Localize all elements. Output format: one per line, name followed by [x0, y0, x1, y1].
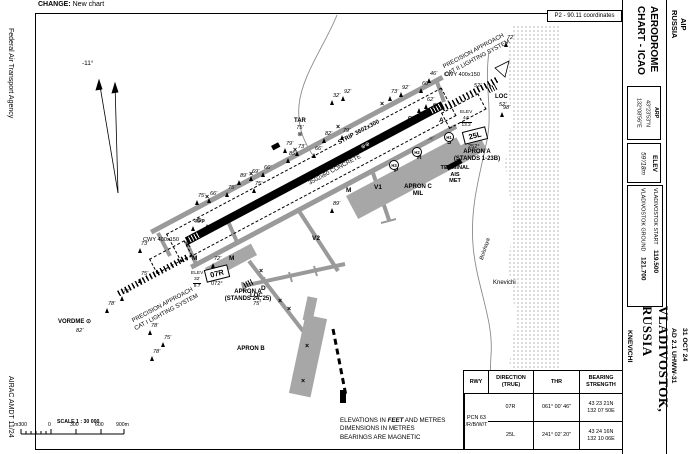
obstacle-icon: 92' — [341, 96, 345, 101]
obstacle-icon: 62' — [424, 104, 428, 109]
elev-box: ELEV 59'/18m — [627, 143, 661, 183]
obstacle-elevation: 75' — [123, 289, 130, 295]
closed-cross-icon: × — [305, 343, 309, 350]
tar-elev: 75' — [296, 125, 303, 131]
obstacle-icon: 89' — [330, 208, 334, 213]
col-header-direction: DIRECTION (TRUE) — [488, 371, 533, 393]
chart-title: AERODROME CHART - ICAO — [634, 6, 660, 90]
closed-cross-icon: × — [380, 101, 384, 108]
obstacle-icon: 78' — [105, 308, 109, 313]
freq-name: VLADIVOSTOK START — [652, 188, 658, 245]
obstacle-icon: 92' — [399, 92, 403, 97]
obstacle-triangle — [388, 96, 392, 101]
cell-rwy-25l: 25L — [488, 421, 533, 449]
glidepath-icon-25l — [417, 108, 421, 113]
obstacle-triangle — [340, 135, 344, 140]
obstacle-triangle — [138, 278, 142, 283]
elev-feet: 32' — [194, 277, 200, 282]
obstacle-triangle — [195, 200, 199, 205]
obstacle-elevation: 46' — [430, 71, 437, 77]
apron-a-west-label: APRON A (STANDS 24, 25) — [213, 289, 283, 303]
taxiway-label: K — [186, 243, 191, 250]
freq-start: VLADIVOSTOK START 119.500 — [649, 188, 661, 304]
change-value: New chart — [73, 1, 105, 8]
obstacle-elevation: 72' — [214, 256, 221, 262]
ad-reference: 31 OCT 24 AD 2.1 UHWW-31 — [667, 328, 689, 450]
elev-label: ELEV — [648, 144, 660, 182]
col-header-rwy: RWY — [464, 371, 488, 393]
tar-site: TAR 75' ⊗ — [294, 118, 306, 139]
obstacle-triangle — [330, 208, 334, 213]
runway-data-table: RWY DIRECTION (TRUE) THR BEARING STRENGT… — [463, 370, 623, 450]
scale-tick-label: 300 — [70, 422, 79, 428]
clearway-elev-25l: 52' — [474, 83, 481, 89]
obstacle-elevation: 75' — [255, 181, 262, 187]
taxiway-label: V1 — [374, 185, 382, 192]
obstacle-elevation: 32' — [333, 93, 340, 99]
arp-lon: 132°08'56"E — [634, 87, 643, 139]
tar-radar-icon: ⊗ — [297, 131, 302, 138]
obstacle-triangle — [322, 138, 326, 143]
obstacle-triangle — [191, 226, 195, 231]
threshold-marks-07r — [188, 232, 200, 242]
obstacle-elevation: 78' — [108, 301, 115, 307]
obstacle-elevation: 66' — [210, 191, 217, 197]
obstacle-triangle — [424, 104, 428, 109]
glidepath-label-25l: GP — [408, 116, 416, 122]
obstacle-icon: 75' — [225, 192, 229, 197]
obstacle-triangle — [261, 172, 265, 177]
closed-cross-icon: × — [301, 378, 305, 385]
elev-value: 59'/18m — [637, 144, 649, 182]
freq-ground: VLADIVOSTOK GROUND 121.700 — [636, 188, 648, 304]
obstacle-elevation: 85' — [289, 151, 296, 157]
coords-note-box: P2 - 90.11 coordinates — [547, 10, 622, 22]
closed-cross-icon: × — [278, 298, 282, 305]
vordme-label: VORDME ⊙ — [58, 319, 91, 326]
taxiway-label: V2 — [312, 236, 320, 243]
ad-date: 31 OCT 24 — [678, 328, 689, 450]
obstacle-triangle — [419, 88, 423, 93]
obstacle-icon: 75' — [195, 200, 199, 205]
cell-thr-07r: 43 23 21N 132 07 50E — [579, 393, 622, 421]
taxiway-label: M — [229, 256, 234, 263]
scale-tick-label: 600 — [95, 422, 104, 428]
holding-point-circle: H1 — [444, 132, 454, 142]
vordme-elev: 82' — [76, 328, 83, 334]
obstacle-triangle — [207, 198, 211, 203]
chart-notes: ELEVATIONS IN FEET AND METRES DIMENSIONS… — [340, 417, 445, 442]
obstacle-elevation: 75' — [164, 335, 171, 341]
holding-point-circle: H2 — [412, 147, 422, 157]
freq-value: 121.700 — [640, 257, 647, 281]
airport-name-label: KNEVICHI — [626, 330, 633, 390]
town-label: Knevichi — [493, 280, 516, 287]
obstacle-elevation: 73' — [298, 144, 305, 150]
taxiway-label: A — [439, 118, 444, 125]
scale-tick-label: m300 — [14, 422, 27, 428]
obstacle-triangle — [148, 330, 152, 335]
obstacle-triangle — [286, 158, 290, 163]
note-part: AND METRES — [403, 417, 445, 424]
obstacle-icon: 75' — [161, 342, 165, 347]
obstacle-triangle — [161, 342, 165, 347]
obstacle-elevation: 46' — [194, 219, 201, 225]
airac-label: AIRAC AMDT 11/24 — [7, 376, 14, 452]
chart-title-line2: CHART - ICAO — [634, 6, 647, 90]
obstacle-icon: 72' — [504, 42, 508, 47]
com-box: VLADIVOSTOK START 119.500 VLADIVOSTOK GR… — [627, 185, 663, 307]
obstacle-elevation: 89' — [333, 201, 340, 207]
obstacle-elevation: 78' — [151, 323, 158, 329]
obstacle-triangle — [500, 112, 504, 117]
obstacle-icon: 46' — [191, 226, 195, 231]
closed-cross-icon: × — [259, 268, 263, 275]
clearway-label-07r: CWY 400x150 — [143, 237, 179, 243]
obstacle-elevation: 73' — [391, 89, 398, 95]
obstacle-icon: 46' — [427, 78, 431, 83]
obstacle-icon: 66' — [419, 88, 423, 93]
taxiway-label: M — [192, 256, 197, 263]
taxiway-label: M — [346, 188, 351, 195]
aerodrome-chart-page: CHANGE: New chart Federal Air Transport … — [0, 0, 690, 454]
obstacle-icon: 73' — [388, 96, 392, 101]
obstacle-triangle — [225, 192, 229, 197]
obstacle-triangle — [504, 42, 508, 47]
cell-direction-25l: 241° 02' 20" — [533, 421, 579, 449]
obstacle-icon: 85' — [286, 158, 290, 163]
obstacle-elevation: 79' — [343, 128, 350, 134]
taxiway-label: D — [261, 286, 266, 293]
obstacle-triangle — [399, 92, 403, 97]
col-header-bearing: BEARING STRENGTH — [579, 371, 622, 393]
obstacle-icon: 75' — [120, 296, 124, 301]
obstacle-triangle — [252, 188, 256, 193]
obstacle-triangle — [211, 263, 215, 268]
obstacle-elevation: 92' — [402, 85, 409, 91]
obstacle-icon: 66' — [207, 198, 211, 203]
obstacle-icon: 79' — [340, 135, 344, 140]
obstacle-triangle — [312, 153, 316, 158]
col-header-thr: THR — [533, 371, 579, 393]
obstacle-triangle — [283, 148, 287, 153]
obstacle-icon: 82' — [322, 138, 326, 143]
obstacle-elevation: 79' — [286, 141, 293, 147]
obstacle-icon: 73' — [138, 248, 142, 253]
chart-title-line1: AERODROME — [647, 6, 660, 90]
obstacle-elevation: 89' — [240, 173, 247, 179]
note-elevations: ELEVATIONS IN FEET AND METRES — [340, 417, 445, 425]
freq-value: 119.500 — [652, 250, 659, 273]
cell-thr-25l: 43 24 16N 132 10 06E — [579, 421, 622, 449]
obstacle-icon: 79' — [283, 148, 287, 153]
ad-ref-number: AD 2.1 UHWW-31 — [667, 328, 678, 450]
cell-direction-07r: 061° 00' 46" — [533, 393, 579, 421]
obstacle-elevation: 62' — [427, 97, 434, 103]
apron-c-label: APRON C MIL — [396, 184, 440, 198]
obstacle-elevation: 66' — [315, 146, 322, 152]
obstacle-triangle — [138, 248, 142, 253]
apron-a-east-label: APRON A (STANDS 1-23B) — [446, 149, 508, 163]
obstacle-icon: 69' — [249, 176, 253, 181]
arp-label: ARP — [651, 87, 660, 139]
obstacle-elevation: 98' — [503, 105, 510, 111]
agency-label: Federal Air Transport Agency — [7, 28, 14, 248]
obstacle-triangle — [330, 100, 334, 105]
obstacle-icon: 72' — [211, 263, 215, 268]
obstacle-elevation: 73' — [141, 241, 148, 247]
obstacle-icon: 98' — [500, 112, 504, 117]
scale-tick-label: 0 — [48, 422, 51, 428]
obstacle-icon: 78' — [148, 330, 152, 335]
scale-tick-label: 900m — [116, 422, 129, 428]
cell-pcn: PCN 63 /R/B/W/T — [464, 393, 488, 449]
cell-rwy-07r: 07R — [488, 393, 533, 421]
obstacle-triangle — [150, 356, 154, 361]
apron-b-label: APRON B — [237, 346, 265, 353]
holding-point-circle: H3 — [389, 160, 399, 170]
obstacle-triangle — [105, 308, 109, 313]
elev-label: ELEV — [191, 271, 203, 276]
note-part: ELEVATIONS IN — [340, 417, 388, 424]
freq-name: VLADIVOSTOK GROUND — [640, 188, 646, 251]
glidepath-icon-07r — [205, 224, 209, 229]
obstacle-icon: 75' — [138, 278, 142, 283]
obstacle-triangle — [120, 296, 124, 301]
note-feet: FEET — [388, 417, 404, 424]
runway-center-symbols: ⊕⊕ — [360, 141, 371, 151]
obstacle-elevation: 82' — [325, 131, 332, 137]
elev-metres: 13.2 — [460, 122, 471, 129]
tar-label: TAR — [294, 118, 306, 124]
variation-label: -11° — [82, 60, 94, 67]
note-bearings: BEARINGS ARE MAGNETIC — [340, 434, 445, 442]
elev-label: ELEV — [460, 110, 472, 115]
note-dimensions: DIMENSIONS IN METRES — [340, 425, 445, 433]
obstacle-elevation: 75' — [198, 193, 205, 199]
obstacle-icon: 78' — [150, 356, 154, 361]
obstacle-elevation: 69' — [252, 169, 259, 175]
change-label: CHANGE: — [38, 1, 71, 8]
change-note: CHANGE: New chart — [38, 1, 104, 8]
obstacle-elevation: 78' — [153, 349, 160, 355]
arp-lat: 43°23'53"N — [643, 87, 652, 139]
arp-box: ARP 43°23'53"N 132°08'56"E — [627, 86, 661, 140]
obstacle-icon: 89' — [237, 180, 241, 185]
obstacle-triangle — [249, 176, 253, 181]
obstacle-triangle — [427, 78, 431, 83]
obstacle-elevation: 92' — [344, 89, 351, 95]
obstacle-icon: 66' — [312, 153, 316, 158]
obstacle-elevation: 75' — [228, 185, 235, 191]
terminal-label: TERMINAL AIS MET — [434, 165, 476, 185]
obstacle-elevation: 75' — [141, 271, 148, 277]
closed-cross-icon: × — [336, 124, 340, 131]
aip-label: AIP RUSSIA — [666, 2, 688, 46]
threshold-elev-25l: ELEV 44' 13.2 — [460, 110, 472, 128]
obstacle-icon: 32' — [330, 100, 334, 105]
obstacle-triangle — [341, 96, 345, 101]
closed-cross-icon: × — [287, 306, 291, 313]
obstacle-triangle — [237, 180, 241, 185]
localizer-label-25l: LOC — [495, 94, 508, 101]
elev-feet: 44' — [463, 116, 469, 121]
obstacle-icon: 66' — [261, 172, 265, 177]
obstacle-icon: 75' — [252, 188, 256, 193]
taxiway-label: F — [433, 104, 437, 111]
obstacle-elevation: 72' — [507, 35, 514, 41]
obstacle-elevation: 66' — [264, 165, 271, 171]
